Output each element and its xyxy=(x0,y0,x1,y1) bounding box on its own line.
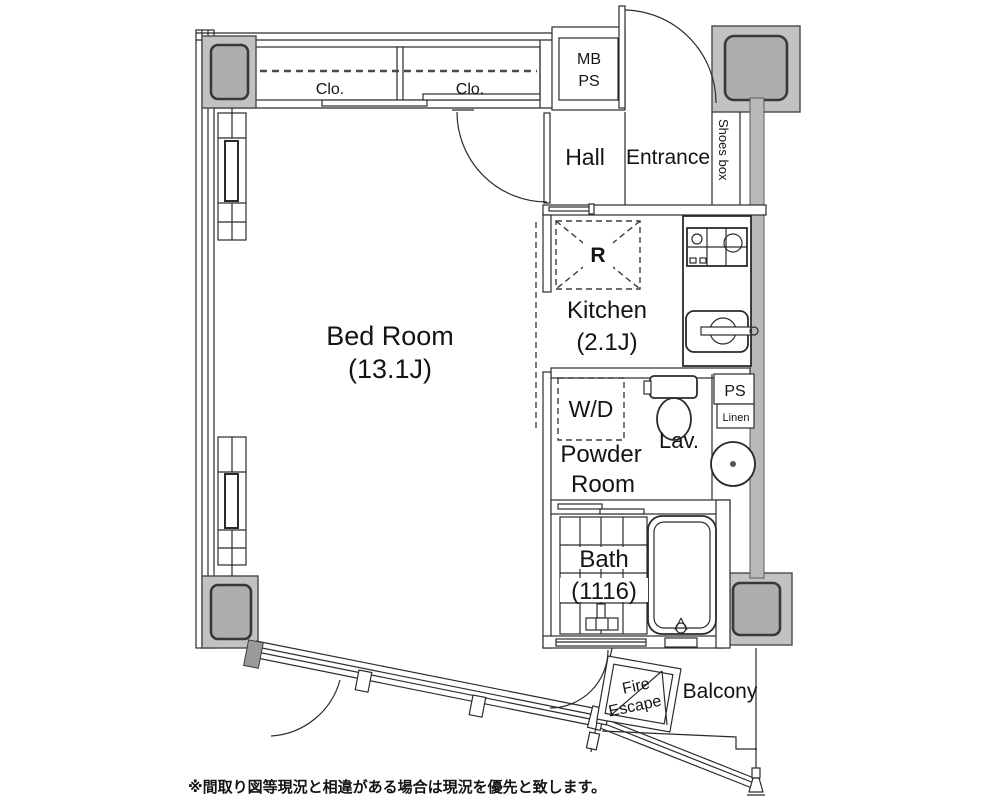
kitchen-counter xyxy=(683,216,758,366)
bedroom-balcony-door-arc xyxy=(271,680,340,736)
disclaimer-note: ※間取り図等現況と相違がある場合は現況を優先と致します。 xyxy=(188,778,606,796)
pillar-top-left xyxy=(202,36,256,108)
closet-divider xyxy=(397,47,403,100)
bedroom-window-wall-diagonal xyxy=(244,640,600,727)
pillar-bottom-right xyxy=(723,573,792,645)
window-unit-upper xyxy=(218,108,246,240)
kitchen-sliding-door xyxy=(549,207,591,211)
pillar-bottom-left xyxy=(202,576,258,648)
bath-door-panel-1 xyxy=(558,504,602,509)
refrigerator-label: R xyxy=(590,244,605,267)
left-wall xyxy=(196,30,214,648)
kitchen-size-label: (2.1J) xyxy=(576,329,637,356)
bathtub-icon xyxy=(648,516,716,647)
hall-entrance-block: Hall Entrance Shoes box xyxy=(452,110,766,215)
bath-balcony-door-arc xyxy=(550,650,608,708)
bath-size-label: (1116) xyxy=(571,578,637,605)
fire-escape-hatch: Fire Escape xyxy=(597,656,681,732)
kitchen-west-wall xyxy=(543,215,551,292)
kitchen-label: Kitchen xyxy=(567,297,647,324)
balcony-label: Balcony xyxy=(683,680,758,703)
entrance-label: Entrance xyxy=(626,146,710,169)
bedroom-door-arc xyxy=(457,112,547,202)
shoes-box-label: Shoes box xyxy=(716,119,731,181)
window-unit-lower xyxy=(218,437,246,576)
wd-label: W/D xyxy=(569,396,614,422)
entrance-door-leaf xyxy=(619,6,625,108)
ps-shaft-label: PS xyxy=(724,383,745,400)
ps-meter-label: PS xyxy=(578,73,599,90)
closet-sliding-door-left xyxy=(322,100,427,106)
window-wall-post xyxy=(355,670,372,692)
bedroom: Bed Room (13.1J) xyxy=(218,108,454,576)
stove-icon xyxy=(687,228,747,266)
bath-east-wall xyxy=(716,500,730,648)
bath: Bath (1116) xyxy=(543,500,730,648)
closet-right-label: Clo. xyxy=(456,81,484,98)
refrigerator-symbol: R xyxy=(556,221,640,289)
wash-basin-icon xyxy=(711,442,755,486)
bedroom-door-leaf xyxy=(544,113,550,203)
window-wall-post xyxy=(469,695,486,717)
right-wall-gray xyxy=(750,98,764,578)
linen-label: Linen xyxy=(723,412,750,424)
entrance-door xyxy=(619,6,716,108)
bedroom-size-label: (13.1J) xyxy=(348,354,432,384)
sink-icon xyxy=(686,311,758,352)
shower-mixer-icon xyxy=(586,604,618,630)
closet-left-label: Clo. xyxy=(316,81,344,98)
bath-label: Bath xyxy=(579,546,628,573)
linen-shelf: Linen xyxy=(717,404,754,428)
powder-label-2: Room xyxy=(571,471,635,498)
bath-door-panel-2 xyxy=(600,509,644,514)
mb-label: MB xyxy=(577,51,601,68)
lav-label: Lav. xyxy=(659,428,699,453)
hall-label: Hall xyxy=(565,144,605,170)
mb-ps-shaft: MB PS xyxy=(552,27,625,110)
bedroom-label: Bed Room xyxy=(326,321,454,351)
balcony-floor-step xyxy=(602,731,757,749)
balcony: Fire Escape Balcony xyxy=(244,640,765,795)
ps-shaft: PS xyxy=(714,374,754,404)
west-wall-lower xyxy=(543,372,551,648)
entrance-door-arc xyxy=(625,10,716,103)
floor-plan-page: MB PS Hall Entrance Shoes box R xyxy=(0,0,999,801)
powder-label-1: Powder xyxy=(560,441,641,468)
floor-plan-drawing: MB PS Hall Entrance Shoes box R xyxy=(0,0,999,801)
